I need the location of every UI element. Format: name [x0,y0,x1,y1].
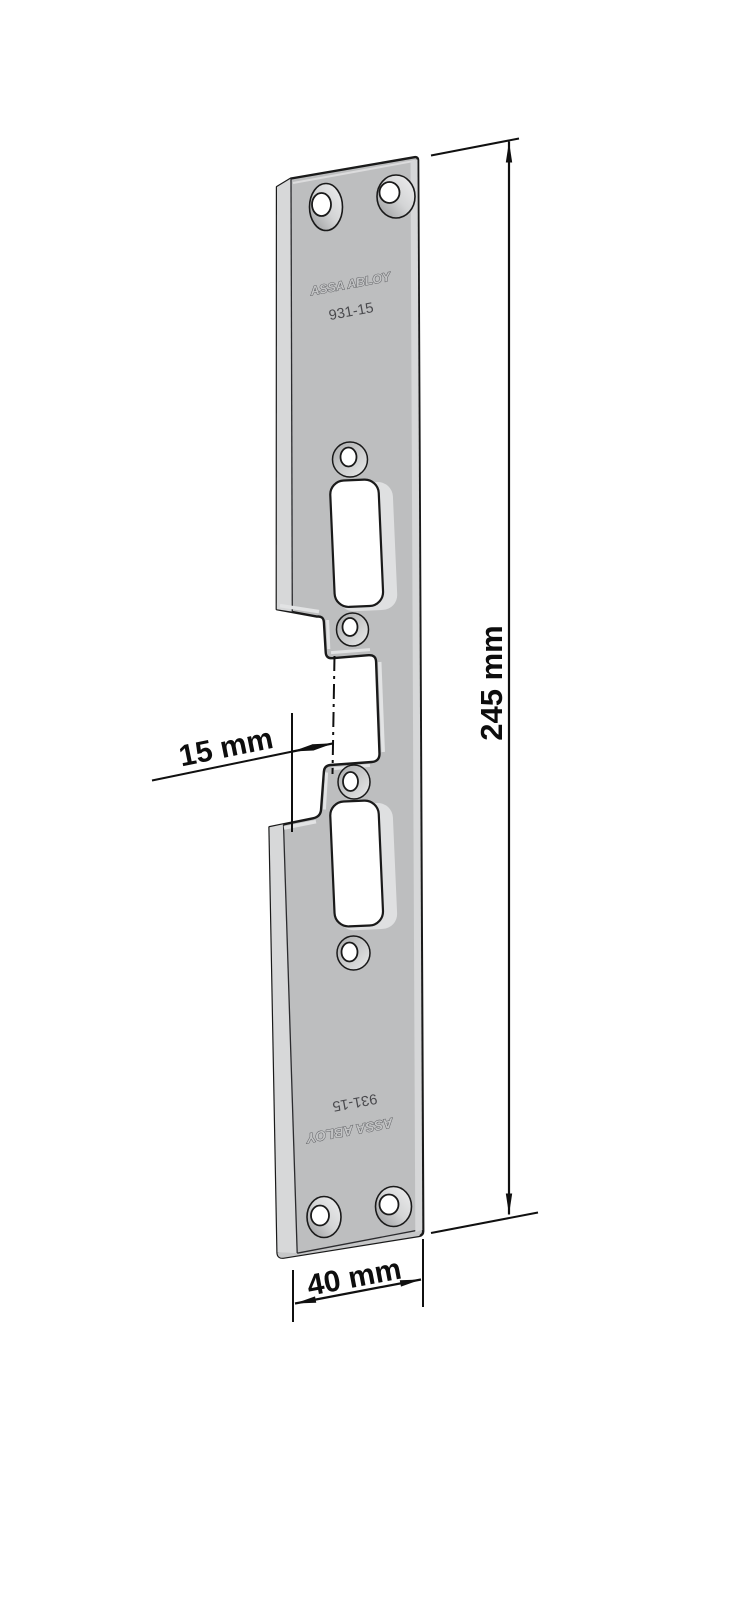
latch-centerline [333,656,335,774]
strike-plate: ASSA ABLOY 931-15 931-15 ASSA ABLOY [270,157,424,1258]
screw-hole-2 [337,613,369,646]
countersunk-hole-top-left-bore [312,193,331,216]
dimension-overall-height: 245 mm [431,139,538,1234]
dimension-line-offset [293,743,334,751]
countersunk-hole-bottom-left [307,1197,341,1238]
dimension-label-height: 245 mm [474,625,509,740]
extension-line-top [431,139,519,156]
screw-hole-3 [338,765,370,799]
screw-hole-4-bore [342,943,358,962]
drawing-canvas: ASSA ABLOY 931-15 931-15 ASSA ABLOY 245 … [0,0,744,1600]
countersunk-hole-top-right [377,175,415,218]
latch-cutout-lower [330,799,398,931]
screw-hole-4 [337,936,370,970]
latch-cutout-upper [330,478,398,612]
countersunk-hole-bottom-right [376,1187,412,1227]
screw-hole-2-bore [343,618,358,636]
dimension-label-width: 40 mm [304,1253,404,1303]
extension-line-bottom [431,1213,538,1234]
countersunk-hole-bottom-left-bore [311,1206,329,1226]
countersunk-hole-top-left [310,184,343,231]
latch-cutout-upper-opening [330,479,384,607]
countersunk-hole-top-right-bore [380,182,400,203]
latch-cutout-lower-opening [330,800,384,927]
screw-hole-1-bore [341,448,357,467]
dimension-center-offset: 15 mm [152,656,335,832]
technical-drawing: ASSA ABLOY 931-15 931-15 ASSA ABLOY 245 … [0,0,744,1600]
countersunk-hole-bottom-right-bore [380,1195,399,1215]
screw-hole-1 [333,442,368,477]
screw-hole-3-bore [343,772,358,791]
plate-left-side-face-upper [277,179,293,612]
